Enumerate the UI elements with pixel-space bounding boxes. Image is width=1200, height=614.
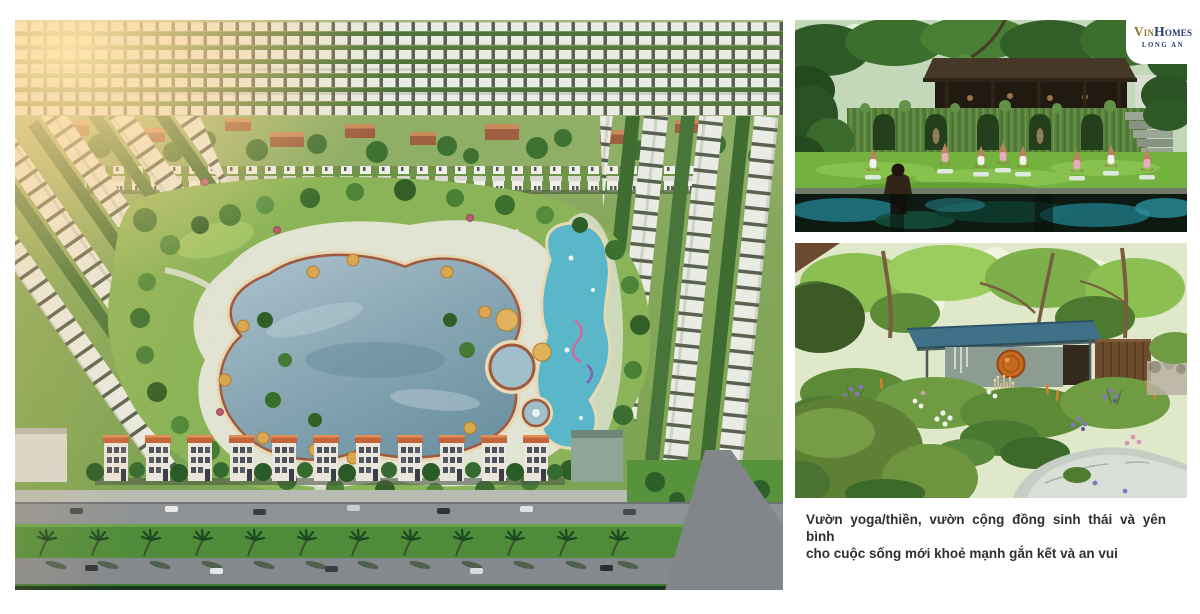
logo-vin-text: Vin: [1134, 24, 1154, 39]
logo-subtitle: LONG AN: [1142, 42, 1184, 49]
vinhomes-logo: VinHomes: [1134, 25, 1192, 39]
caption-line-1: Vườn yoga/thiền, vườn cộng đồng sinh thá…: [806, 511, 1166, 545]
brochure-page: VinHomes LONG AN Vườn yoga/thiền, vườn c…: [0, 0, 1200, 614]
masterplan-illustration: [15, 20, 783, 590]
gong-disc-icon: [998, 351, 1025, 378]
caption-line-2: cho cuộc sống mới khoẻ mạnh gắn kết và a…: [806, 545, 1166, 562]
garden-illustration: [795, 243, 1187, 498]
vinhomes-logo-badge: VinHomes LONG AN: [1126, 0, 1200, 64]
caption: Vườn yoga/thiền, vườn cộng đồng sinh thá…: [806, 511, 1166, 562]
logo-homes-text: Homes: [1154, 24, 1192, 39]
masterplan-aerial-image: [15, 20, 783, 590]
garden-image: [795, 243, 1187, 498]
